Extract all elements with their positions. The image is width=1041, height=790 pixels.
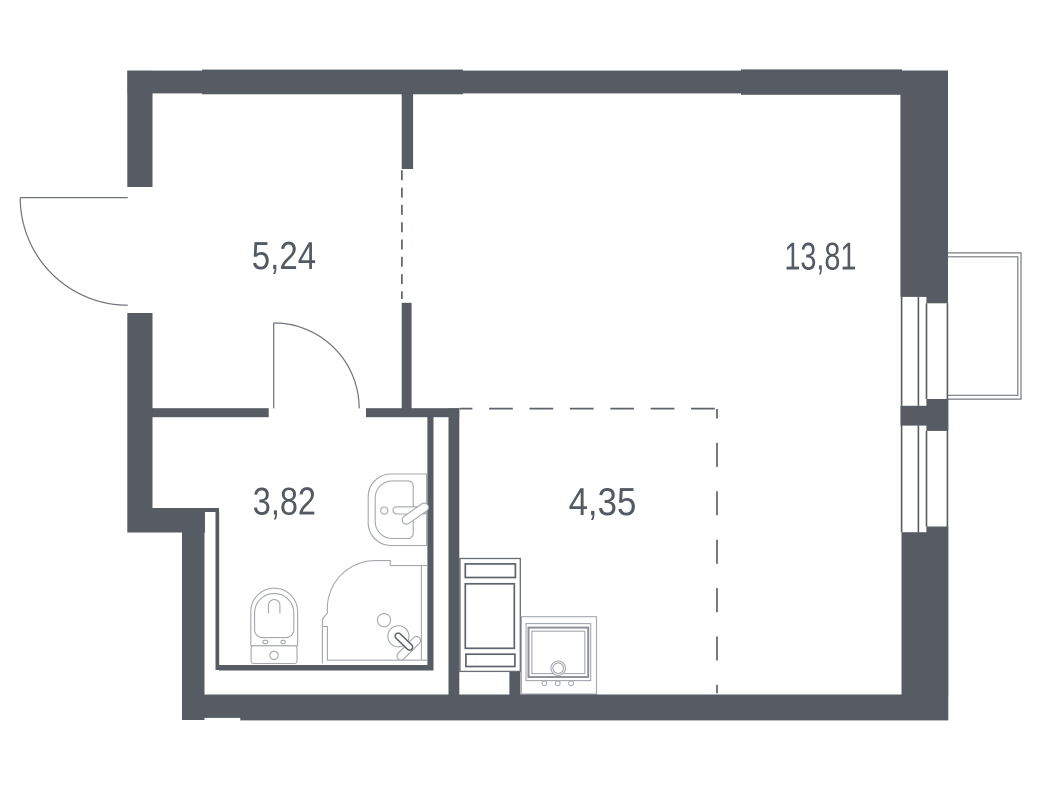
svg-text:4,35: 4,35 <box>569 481 637 524</box>
svg-text:13,81: 13,81 <box>784 236 856 279</box>
svg-text:3,82: 3,82 <box>253 481 316 524</box>
svg-text:5,24: 5,24 <box>252 235 316 278</box>
